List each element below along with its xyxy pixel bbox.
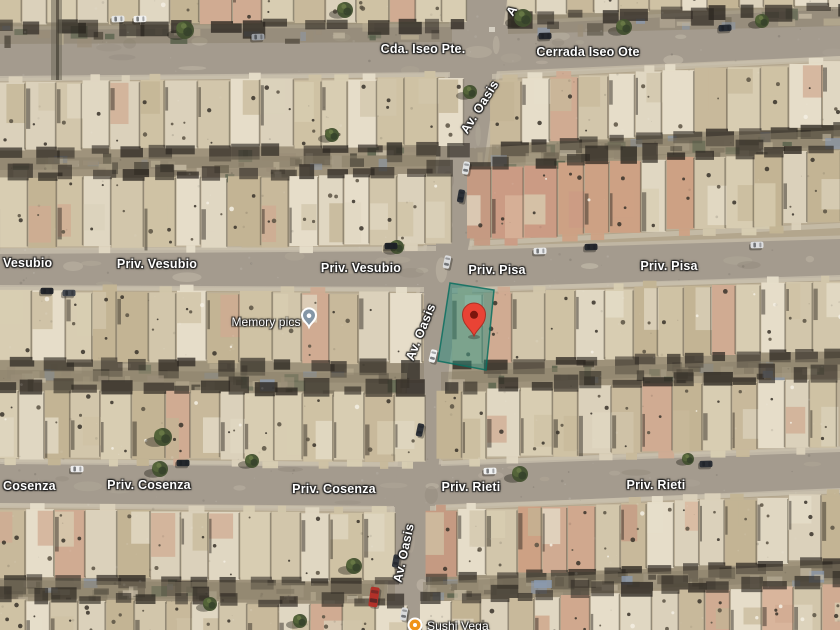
restaurant-poi-icon[interactable] <box>409 619 422 630</box>
satellite-imagery <box>0 0 840 630</box>
map-viewport[interactable]: Cda. Iseo Pte. Cerrada Iseo Ote A Av. Oa… <box>0 0 840 630</box>
memory-pics-poi-label[interactable]: Memory pics <box>231 316 300 328</box>
restaurant-poi-label[interactable]: Sushi Vega <box>427 620 489 630</box>
